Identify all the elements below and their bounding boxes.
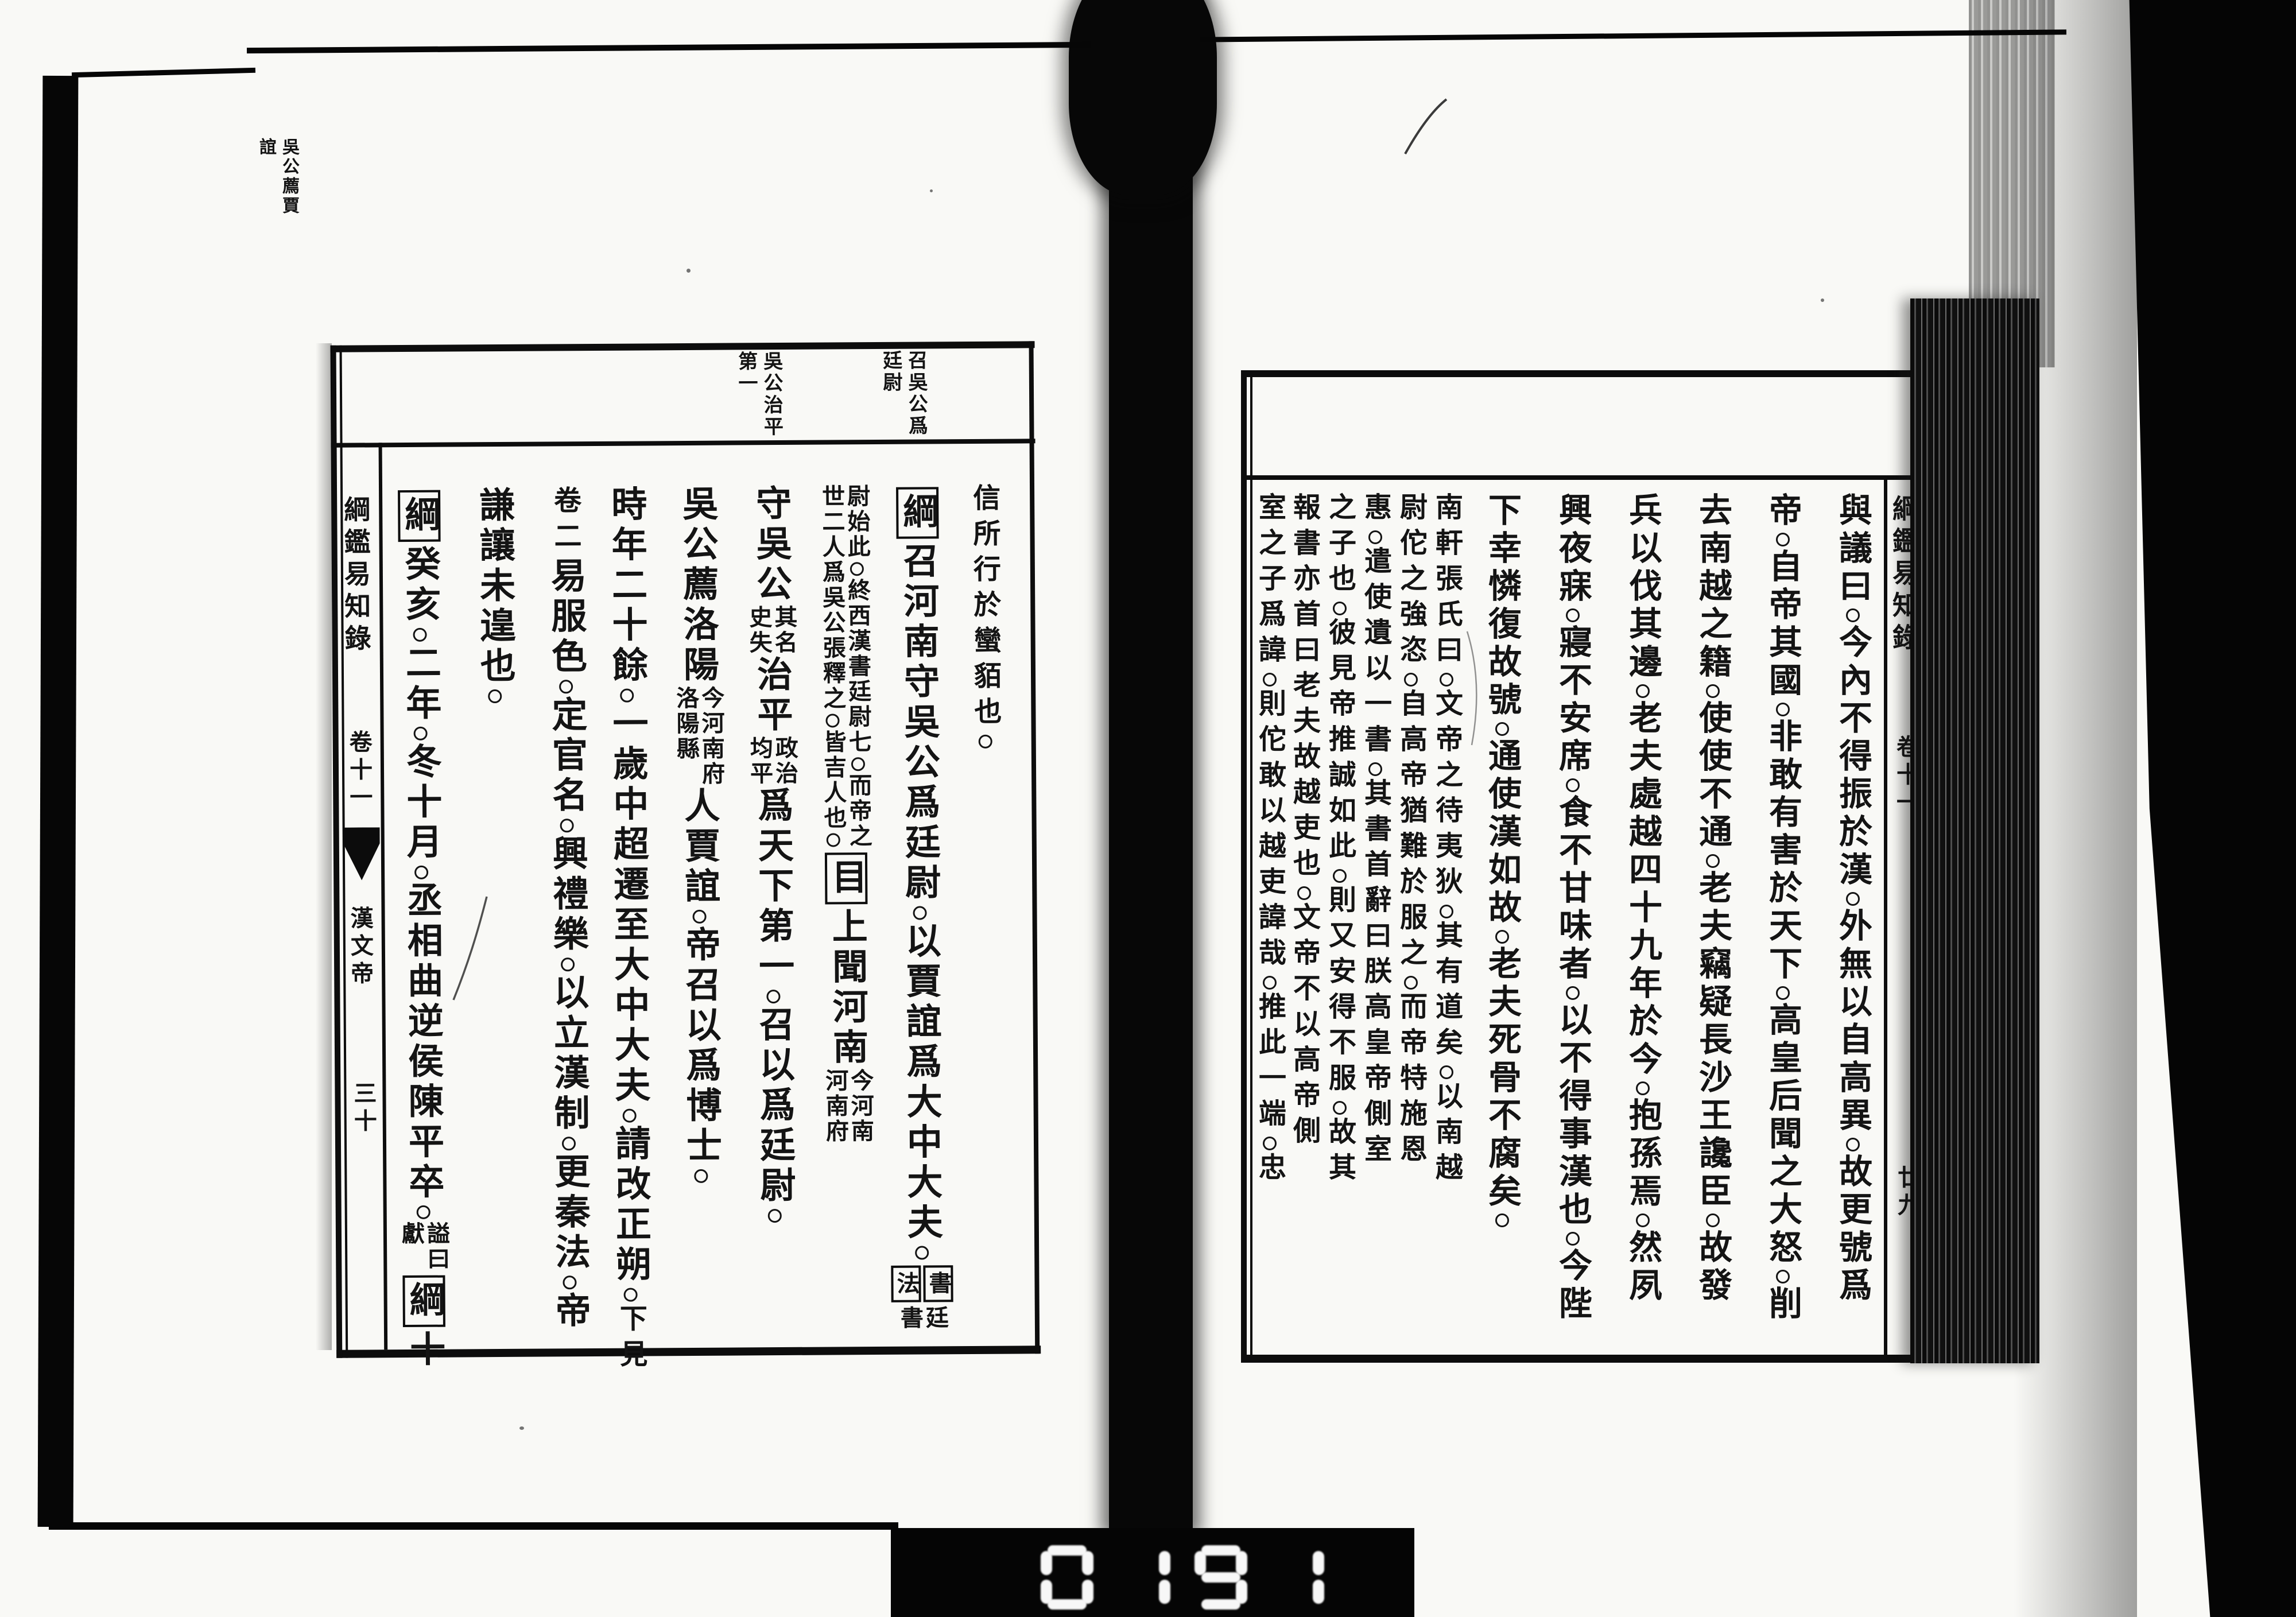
page-frame-edge [1241, 370, 1247, 1363]
punctuation-ring [1776, 1270, 1790, 1283]
punctuation-ring [1706, 1213, 1720, 1227]
text-column: 報書亦首曰老夫故越吏也文帝不以高帝側 [1285, 493, 1323, 1151]
text-column: 室之子爲諱則佗敢以越吏諱哉推此一端忠 [1251, 493, 1289, 1188]
punctuation-ring [1263, 976, 1277, 990]
punctuation-ring [1636, 1213, 1650, 1227]
text-column: 兵以伐其邊老夫處越四十九年於今抱孫焉然夙 [1608, 493, 1677, 1305]
punctuation-ring [1495, 1213, 1509, 1227]
column-text: 去南越之籍使使不通老夫竊疑長沙王讒臣故發 [1696, 493, 1729, 1305]
punctuation-ring [1636, 684, 1650, 698]
counter-digit [1271, 1545, 1324, 1610]
page-frame-rule [1241, 370, 1969, 377]
text-column: 與議曰今內不得振於漢外無以自高異故更號爲 [1818, 493, 1887, 1305]
punctuation-ring [1440, 673, 1453, 687]
column-text: 與議曰今內不得振於漢外無以自高異故更號爲 [1836, 493, 1870, 1305]
text-column: 帝自帝其國非敢有害於天下高皇后聞之大怒削 [1748, 493, 1817, 1324]
punctuation-ring [1776, 533, 1790, 546]
punctuation-ring [1566, 608, 1580, 622]
column-text: 惠遣使遺以一書其書首辭曰朕高皇帝側室 [1362, 493, 1389, 1170]
punctuation-ring [1706, 854, 1720, 868]
microfilm-scan: 綱鑑易知錄 卷十一 漢文帝 三十 召吳公爲廷尉吳公治平第一 信所行於蠻貊也綱召河… [0, 0, 2296, 1617]
punctuation-ring [1566, 778, 1580, 792]
column-text: 興夜寐寢不安席食不甘味者以不得事漢也今陛 [1556, 493, 1589, 1324]
page-frame-rule [1241, 475, 1969, 480]
punctuation-ring [1566, 1232, 1580, 1246]
left-page-edge-shadow [316, 343, 332, 1350]
column-text: 兵以伐其邊老夫處越四十九年於今抱孫焉然夙 [1626, 493, 1659, 1305]
punctuation-ring [1846, 892, 1860, 906]
page-frame-rule [1241, 1355, 1975, 1363]
punctuation-ring [1706, 684, 1720, 698]
film-edge-right-shadow [2014, 0, 2137, 1617]
text-column: 之子也彼見帝推誠如此則又安得不服故其 [1321, 493, 1359, 1188]
punctuation-ring [1846, 1138, 1860, 1151]
film-edge-left [38, 76, 79, 1527]
punctuation-ring [1368, 762, 1382, 776]
punctuation-ring [1495, 722, 1509, 736]
note-subcolumn: 誼 [257, 138, 274, 216]
punctuation-ring [1776, 703, 1790, 716]
column-text: 報書亦首曰老夫故越吏也文帝不以高帝側 [1290, 493, 1318, 1151]
punctuation-ring [1263, 1137, 1277, 1150]
punctuation-ring [1776, 986, 1790, 1000]
punctuation-ring [1440, 905, 1453, 918]
punctuation-ring [1846, 608, 1860, 622]
column-text: 南軒張氏曰文帝之待夷狄其有道矣以南越 [1433, 493, 1460, 1188]
punctuation-ring [1566, 986, 1580, 1000]
book-gutter-top-shadow [1069, 0, 1217, 195]
punctuation-ring [1404, 976, 1418, 990]
book-gutter-shadow [1109, 0, 1193, 1528]
punctuation-ring [1333, 1101, 1347, 1115]
counter-digit [1194, 1545, 1247, 1610]
note-subcolumn: 吳公薦賈 [280, 138, 297, 216]
text-column: 下幸憐復故號通使漢如故老夫死骨不腐矣 [1468, 493, 1537, 1230]
punctuation-ring [1263, 673, 1277, 687]
column-text: 室之子爲諱則佗敢以越吏諱哉推此一端忠 [1256, 493, 1283, 1188]
text-column: 惠遣使遺以一書其書首辭曰朕高皇帝側室 [1356, 493, 1394, 1170]
punctuation-ring [1368, 530, 1382, 544]
counter-digit [1041, 1545, 1093, 1610]
counter-digits [1041, 1545, 1324, 1610]
text-column: 去南越之籍使使不通老夫竊疑長沙王讒臣故發 [1678, 493, 1747, 1305]
text-column: 南軒張氏曰文帝之待夷狄其有道矣以南越 [1428, 493, 1465, 1188]
counter-digit [1118, 1545, 1170, 1610]
punctuation-ring [1333, 869, 1347, 883]
punctuation-ring [1440, 1065, 1453, 1079]
punctuation-ring [1404, 673, 1418, 687]
column-text: 尉佗之強恣自高帝猶難於服之而帝特施恩 [1397, 493, 1425, 1170]
text-column: 興夜寐寢不安席食不甘味者以不得事漢也今陛 [1538, 493, 1607, 1324]
text-column: 尉佗之強恣自高帝猶難於服之而帝特施恩 [1392, 493, 1430, 1170]
film-baseline [49, 1522, 898, 1530]
punctuation-ring [1636, 1081, 1650, 1095]
punctuation-ring [1297, 886, 1311, 900]
margin-note: 吳公薦賈誼 [257, 138, 297, 216]
punctuation-ring [1495, 930, 1509, 944]
column-text: 之子也彼見帝推誠如此則又安得不服故其 [1326, 493, 1353, 1188]
column-text: 下幸憐復故號通使漢如故老夫死骨不腐矣 [1486, 493, 1519, 1230]
column-text: 帝自帝其國非敢有害於天下高皇后聞之大怒削 [1766, 493, 1799, 1324]
punctuation-ring [1333, 602, 1347, 615]
